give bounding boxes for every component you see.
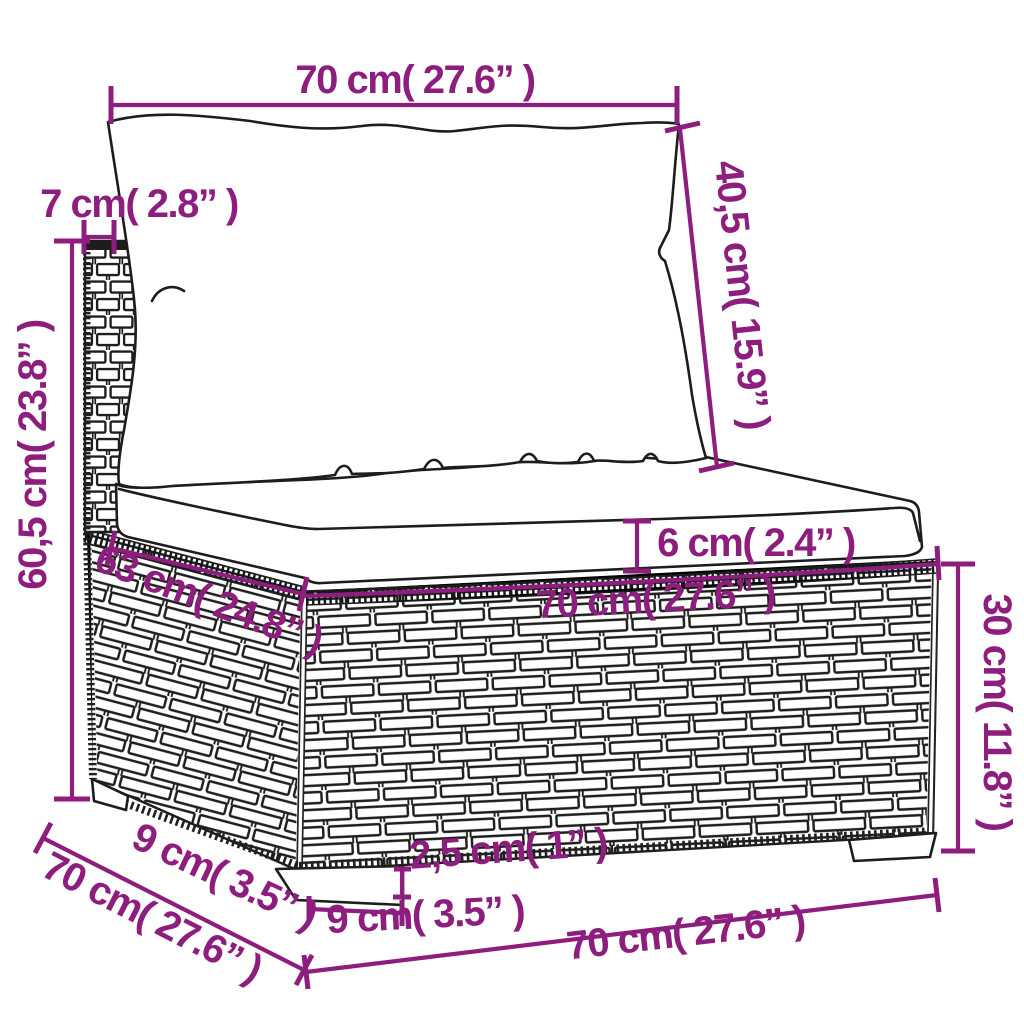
svg-text:60,5 cm( 23.8” ): 60,5 cm( 23.8” ) — [11, 320, 55, 590]
svg-text:7 cm( 2.8” ): 7 cm( 2.8” ) — [40, 182, 238, 226]
svg-text:70 cm( 27.6” ): 70 cm( 27.6” ) — [295, 58, 534, 102]
svg-text:30 cm( 11.8” ): 30 cm( 11.8” ) — [975, 594, 1019, 831]
svg-text:6 cm( 2.4” ): 6 cm( 2.4” ) — [657, 521, 855, 565]
